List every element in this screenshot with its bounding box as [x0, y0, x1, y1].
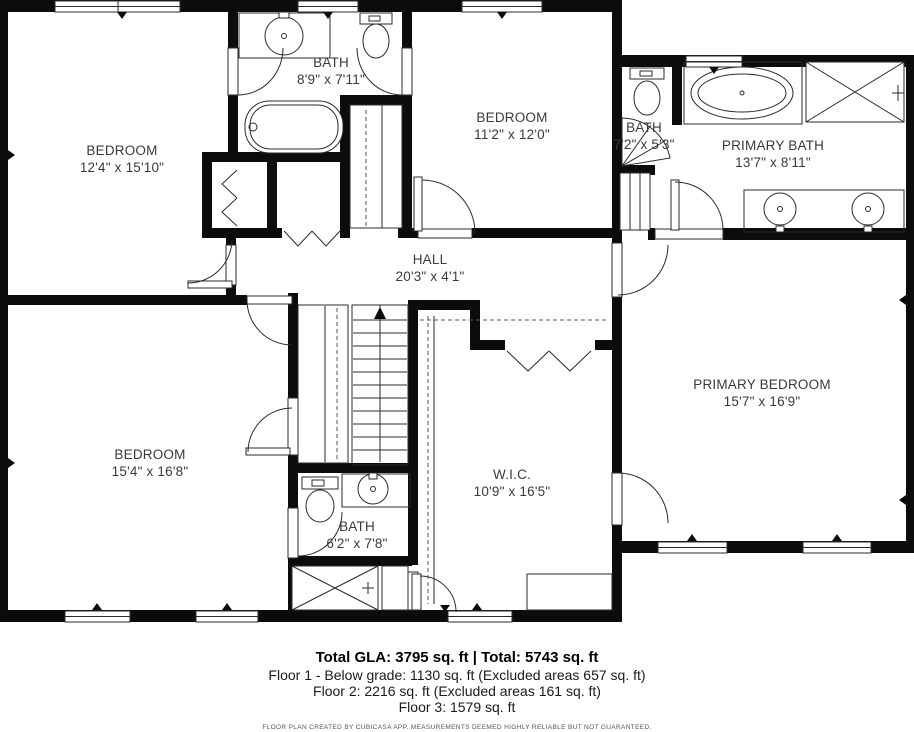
- toilet-icon: [630, 68, 664, 115]
- toilet-icon: [302, 477, 338, 522]
- window-icon: [298, 1, 358, 12]
- total-gla-line: Total GLA: 3795 sq. ft | Total: 5743 sq.…: [0, 649, 914, 667]
- closet-box: [298, 305, 348, 463]
- door-arc-icon: [228, 48, 283, 95]
- window-icon: [65, 611, 130, 622]
- stairs-icon: [352, 305, 408, 465]
- shower-icon: [806, 62, 904, 122]
- floor-plan-page: BEDROOM 12'4" x 15'10" BATH 8'9" x 7'11"…: [0, 0, 914, 732]
- door-arc-icon: [247, 296, 292, 345]
- door-arc-icon: [414, 177, 475, 238]
- window-icon: [196, 611, 258, 622]
- bathroom-fixtures: [239, 12, 904, 610]
- door-arc-icon: [655, 180, 723, 239]
- floor1-line: Floor 1 - Below grade: 1130 sq. ft (Excl…: [0, 667, 914, 683]
- oval-tub-icon: [684, 62, 802, 124]
- window-icon: [448, 611, 512, 622]
- closet-box: [350, 105, 402, 228]
- floor-plan-drawing: [0, 0, 914, 640]
- bifold-door-icon: [284, 231, 340, 246]
- sink-icon: [239, 12, 330, 58]
- door-arc-icon: [246, 398, 298, 455]
- toilet-icon: [360, 13, 392, 58]
- linen-closet: [620, 173, 650, 230]
- door-arc-icon: [612, 243, 668, 297]
- door-arc-icon: [188, 240, 236, 288]
- bifold-door-icon: [507, 351, 591, 371]
- floor3-line: Floor 3: 1579 sq. ft: [0, 699, 914, 715]
- built-in-cabinet: [527, 574, 612, 610]
- disclaimer-text: FLOOR PLAN CREATED BY CUBICASA APP. MEAS…: [0, 724, 914, 731]
- closets: [222, 105, 650, 610]
- bifold-door-icon: [222, 170, 237, 226]
- shower-icon: [292, 566, 408, 610]
- summary-footer: Total GLA: 3795 sq. ft | Total: 5743 sq.…: [0, 649, 914, 731]
- door-arc-icon: [612, 473, 668, 525]
- vanity-icon: [744, 190, 904, 232]
- door-arc-icon: [357, 48, 412, 95]
- bathtub-icon: [245, 101, 343, 153]
- sink-icon: [342, 473, 410, 507]
- floor2-line: Floor 2: 2216 sq. ft (Excluded areas 161…: [0, 683, 914, 699]
- window-icon: [462, 1, 542, 12]
- window-icon: [803, 542, 871, 553]
- window-icon: [55, 1, 180, 12]
- fan-door-icon: [622, 118, 670, 166]
- window-icon: [658, 542, 727, 553]
